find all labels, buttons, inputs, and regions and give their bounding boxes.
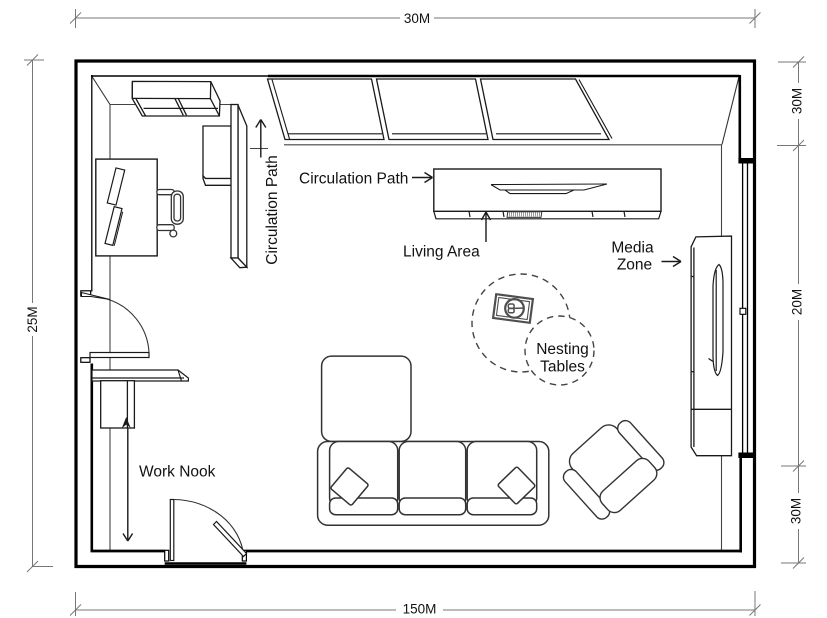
svg-text:30M: 30M	[404, 11, 430, 26]
svg-text:25M: 25M	[25, 306, 40, 332]
svg-text:Work Nook: Work Nook	[139, 464, 216, 481]
svg-text:Media: Media	[611, 240, 654, 257]
svg-text:Zone: Zone	[617, 257, 652, 274]
svg-text:Nesting: Nesting	[536, 341, 589, 358]
svg-text:150M: 150M	[403, 602, 437, 617]
svg-text:20M: 20M	[790, 289, 805, 315]
svg-text:Tables: Tables	[540, 359, 585, 376]
svg-text:Living Area: Living Area	[403, 244, 480, 261]
svg-text:Circulation Path: Circulation Path	[299, 171, 408, 188]
svg-text:30M: 30M	[789, 498, 804, 524]
svg-text:Circulation Path: Circulation Path	[264, 155, 281, 264]
svg-text:30M: 30M	[790, 88, 805, 114]
